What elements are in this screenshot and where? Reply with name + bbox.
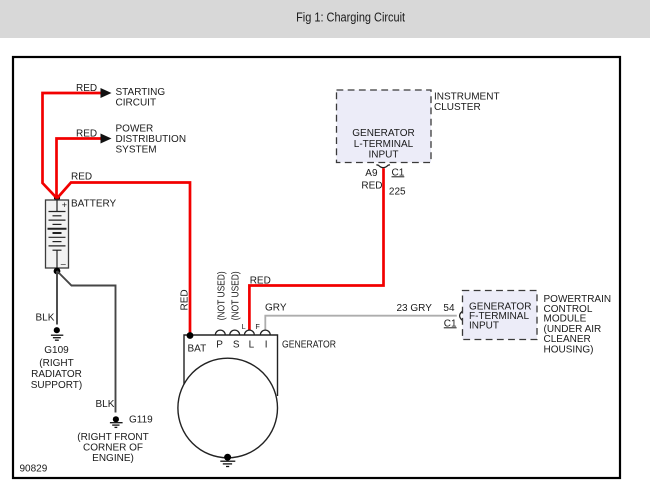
svg-text:RED: RED xyxy=(250,276,271,287)
svg-text:L: L xyxy=(249,340,255,351)
svg-text:Fig 1: Charging Circuit: Fig 1: Charging Circuit xyxy=(296,10,405,25)
svg-text:F: F xyxy=(255,322,260,331)
svg-text:DISTRIBUTION: DISTRIBUTION xyxy=(116,134,187,145)
svg-text:–: – xyxy=(61,259,66,269)
svg-text:RED: RED xyxy=(180,289,191,310)
svg-text:HOUSING): HOUSING) xyxy=(544,345,594,356)
svg-text:54: 54 xyxy=(443,303,455,314)
svg-text:P: P xyxy=(216,340,223,351)
svg-text:G119: G119 xyxy=(129,415,153,426)
svg-text:INPUT: INPUT xyxy=(469,321,499,332)
svg-text:CLUSTER: CLUSTER xyxy=(434,102,481,113)
svg-text:CORNER OF: CORNER OF xyxy=(83,443,143,454)
svg-text:STARTING: STARTING xyxy=(116,87,166,98)
svg-text:BAT: BAT xyxy=(188,344,207,355)
svg-text:90829: 90829 xyxy=(20,464,48,475)
svg-text:SUPPORT): SUPPORT) xyxy=(31,380,83,391)
svg-text:CLEANER: CLEANER xyxy=(544,334,591,345)
svg-text:(RIGHT: (RIGHT xyxy=(39,358,73,369)
svg-text:ENGINE): ENGINE) xyxy=(92,453,134,464)
svg-text:(RIGHT FRONT: (RIGHT FRONT xyxy=(77,432,148,443)
svg-text:L: L xyxy=(242,322,246,331)
svg-text:GRY: GRY xyxy=(265,303,287,314)
svg-text:RADIATOR: RADIATOR xyxy=(31,369,82,380)
svg-text:INSTRUMENT: INSTRUMENT xyxy=(434,92,500,103)
svg-text:RED: RED xyxy=(361,181,382,192)
svg-text:C1: C1 xyxy=(392,167,405,178)
svg-text:L-TERMINAL: L-TERMINAL xyxy=(354,139,414,150)
svg-text:A9: A9 xyxy=(365,168,378,179)
svg-text:C1: C1 xyxy=(444,318,457,329)
svg-text:RED: RED xyxy=(76,129,97,140)
svg-text:(NOT USED): (NOT USED) xyxy=(217,271,228,320)
svg-text:BATTERY: BATTERY xyxy=(71,199,117,210)
svg-text:CIRCUIT: CIRCUIT xyxy=(116,98,157,109)
svg-text:G109: G109 xyxy=(44,345,69,356)
svg-text:RED: RED xyxy=(71,172,92,183)
svg-text:(NOT USED): (NOT USED) xyxy=(231,271,242,320)
svg-text:23 GRY: 23 GRY xyxy=(397,303,433,314)
svg-text:GENERATOR: GENERATOR xyxy=(282,339,336,350)
svg-text:S: S xyxy=(233,340,240,351)
svg-text:+: + xyxy=(62,200,67,210)
svg-text:I: I xyxy=(265,340,268,351)
svg-text:MODULE: MODULE xyxy=(544,314,587,325)
svg-text:INPUT: INPUT xyxy=(369,150,399,161)
svg-text:GENERATOR: GENERATOR xyxy=(352,128,414,139)
svg-text:BLK: BLK xyxy=(36,313,55,324)
svg-text:SYSTEM: SYSTEM xyxy=(116,145,157,156)
svg-text:POWER: POWER xyxy=(116,124,154,135)
svg-text:225: 225 xyxy=(389,187,406,198)
svg-text:BLK: BLK xyxy=(96,399,115,410)
svg-text:RED: RED xyxy=(76,83,97,94)
